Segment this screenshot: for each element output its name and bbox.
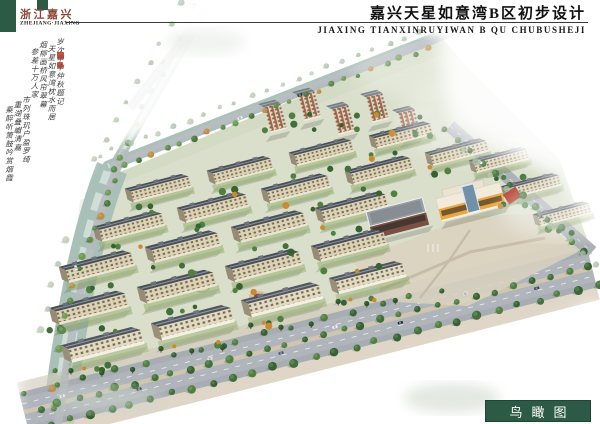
project-title-chinese: 嘉兴天星如意湾B区初步设计 (370, 2, 586, 23)
calligraphy-column: 参差十万人家 (31, 48, 39, 99)
calligraphy-column: 烟柳画桥风帘翠幕 (39, 41, 47, 109)
aerial-rendering (0, 0, 600, 424)
presentation-sheet: 浙江嘉兴 ZHEJIANG·JIAXING 嘉兴天星如意湾B区初步设计 JIAX… (0, 0, 600, 424)
drawing-label-text: 鸟瞰图 (500, 402, 575, 421)
region-stamp-chinese: 浙江嘉兴 (20, 6, 74, 22)
calligraphy-column: 天星如意湾枕水而居 (48, 45, 56, 122)
drawing-label-box: 鸟瞰图 (485, 400, 591, 422)
calligraphy-column: 重湖叠巘清嘉 (14, 101, 22, 152)
calligraphy-column: 市列珠玑户盈罗绮 (22, 96, 30, 164)
calligraphy-column: 岁次甲申仲秋题记 (56, 38, 64, 106)
calligraphy-inscription: 岁次甲申仲秋题记天星如意湾枕水而居烟柳画桥风帘翠幕参差十万人家市列珠玑户盈罗绮重… (5, 38, 64, 258)
calligraphy-column: 乘醉听箫鼓吟赏烟霞 (5, 106, 13, 183)
red-seal-stamp (57, 62, 63, 68)
project-title-pinyin: JIAXING TIANXINRUYIWAN B QU CHUBUSHEJI (317, 25, 586, 35)
red-seal-stamp (57, 52, 64, 59)
institute-logo-block (0, 0, 16, 32)
